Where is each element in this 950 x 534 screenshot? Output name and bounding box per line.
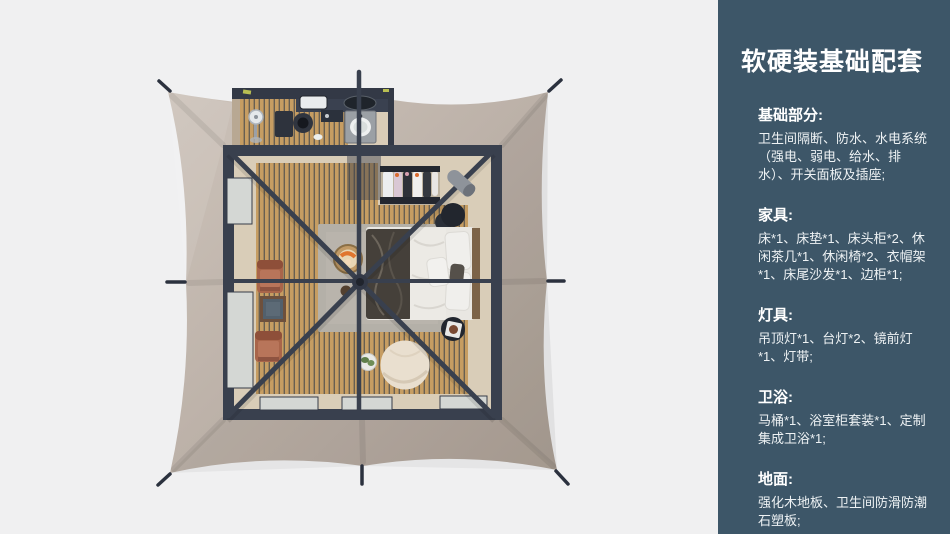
stake-top-right [549, 80, 561, 91]
bathroom-wall-right [388, 88, 394, 150]
panel-title: 软硬装基础配套 [741, 42, 930, 78]
rack-top-bar [380, 166, 440, 172]
rack-bottom-bar [380, 197, 440, 204]
bathroom-wall-left [232, 99, 240, 150]
window-left-lower [227, 292, 253, 388]
floor-mat [314, 134, 323, 140]
section-body: 马桶*1、浴室柜套装*1、定制集成卫浴*1; [758, 412, 930, 448]
accent-strip-right [383, 89, 389, 92]
stake-bottom-right [556, 471, 568, 484]
section-body: 强化木地板、卫生间防滑防潮石塑板; [758, 494, 930, 530]
section-label: 灯具: [758, 304, 930, 325]
tea-table [260, 296, 286, 322]
counter-item [325, 114, 329, 118]
headboard [472, 228, 480, 319]
window-bottom-left [260, 397, 318, 410]
window-bottom-middle [342, 397, 392, 410]
bathroom-annex [232, 88, 394, 150]
section-label: 卫浴: [758, 386, 930, 407]
section-label: 地面: [758, 468, 930, 489]
clothes-rack [380, 166, 440, 205]
spec-section-bathroom: 卫浴: 马桶*1、浴室柜套装*1、定制集成卫浴*1; [758, 386, 930, 448]
bathroom-counter [321, 110, 343, 122]
leisure-chair-upper [257, 260, 283, 293]
tent-floorplan-render [0, 0, 718, 534]
stake-top-left [159, 81, 170, 91]
skylight [300, 96, 327, 109]
plant-table [360, 354, 377, 371]
hanger-hook-3 [405, 172, 409, 176]
spec-section-furniture: 家具: 床*1、床垫*1、床头柜*2、休闲茶几*1、休闲椅*2、衣帽架*1、床尾… [758, 204, 930, 284]
hanger-hook-1 [395, 173, 399, 177]
section-label: 家具: [758, 204, 930, 225]
pole-hub [352, 274, 368, 290]
section-body: 卫生间隔断、防水、水电系统（强电、弱电、给水、排水）、开关面板及插座; [758, 130, 930, 184]
spec-section-flooring: 地面: 强化木地板、卫生间防滑防潮石塑板; [758, 468, 930, 530]
spec-section-basics: 基础部分: 卫生间隔断、防水、水电系统（强电、弱电、给水、排水）、开关面板及插座… [758, 104, 930, 184]
info-panel: 软硬装基础配套 基础部分: 卫生间隔断、防水、水电系统（强电、弱电、给水、排水）… [718, 0, 950, 534]
section-body: 床*1、床垫*1、床头柜*2、休闲茶几*1、休闲椅*2、衣帽架*1、床尾沙发*1… [758, 230, 930, 284]
hanger-hook-2 [415, 173, 419, 177]
stake-bottom-left [158, 474, 170, 485]
section-body: 吊顶灯*1、台灯*2、镜前灯*1、灯带; [758, 330, 930, 366]
bathroom-doorway-shadow [347, 156, 381, 200]
garment-white-3 [432, 171, 438, 196]
section-label: 基础部分: [758, 104, 930, 125]
spec-section-lighting: 灯具: 吊顶灯*1、台灯*2、镜前灯*1、灯带; [758, 304, 930, 366]
garment-dark-2 [423, 171, 431, 198]
window-left-upper [227, 178, 252, 224]
bedside-tray-table [441, 317, 465, 341]
brochure-page: 软硬装基础配套 基础部分: 卫生间隔断、防水、水电系统（强电、弱电、给水、排水）… [0, 0, 950, 534]
leisure-chair-lower [255, 331, 282, 362]
